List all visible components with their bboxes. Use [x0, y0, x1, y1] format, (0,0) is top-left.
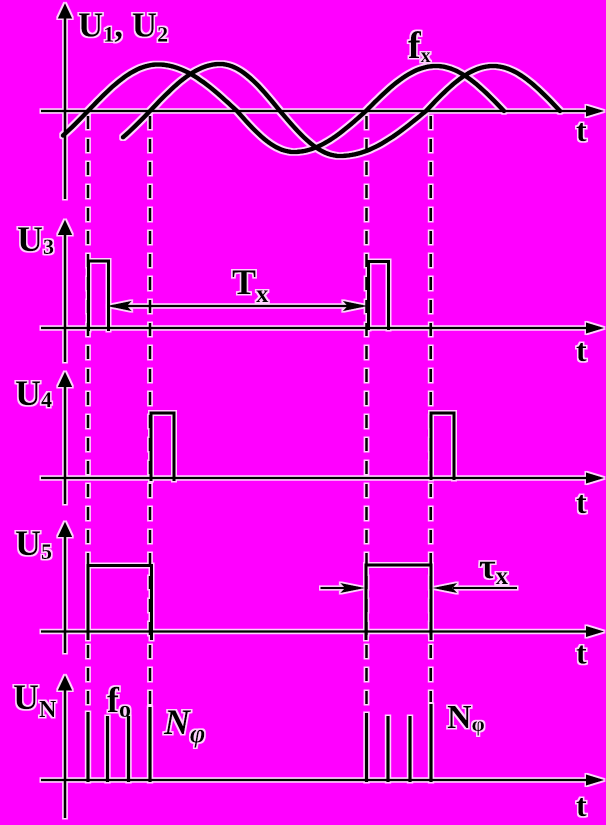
svg-text:t: t — [576, 484, 587, 520]
svg-text:t: t — [576, 635, 587, 671]
svg-text:U1, U2: U1, U2 — [78, 6, 168, 47]
svg-text:t: t — [576, 112, 587, 148]
svg-text:t: t — [576, 332, 587, 368]
svg-text:t: t — [576, 787, 587, 823]
